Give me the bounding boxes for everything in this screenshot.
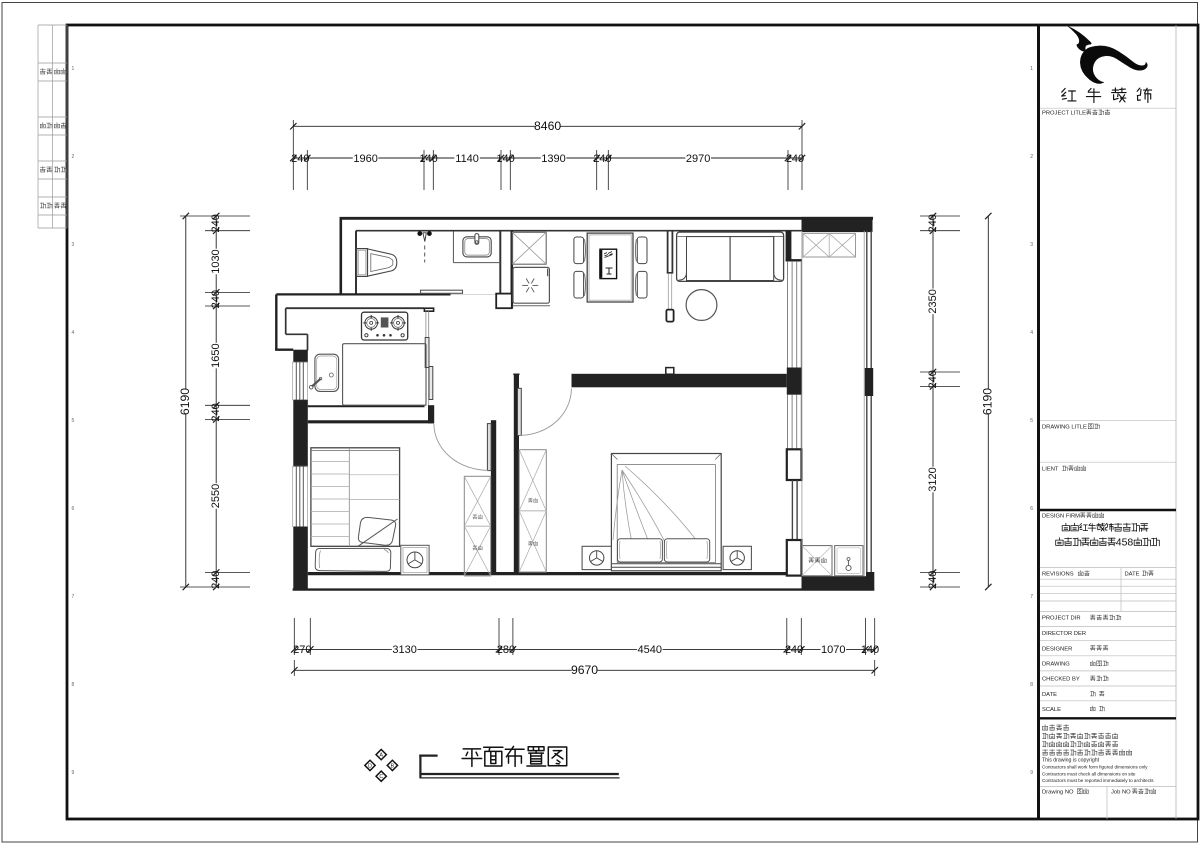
svg-text:7: 7	[72, 594, 75, 600]
svg-text:240: 240	[210, 571, 222, 589]
svg-text:1390: 1390	[541, 153, 565, 165]
svg-text:REVISIONS: REVISIONS	[1042, 572, 1074, 578]
svg-text:5: 5	[1030, 418, 1033, 424]
svg-text:6190: 6190	[178, 388, 192, 415]
svg-text:CHECKED BY: CHECKED BY	[1042, 677, 1080, 683]
svg-text:240: 240	[210, 290, 222, 308]
svg-text:8460: 8460	[534, 119, 561, 133]
svg-text:Contractors must check all dim: Contractors must check all dimensions on…	[1042, 772, 1136, 777]
svg-text:DRAWING LITLE: DRAWING LITLE	[1042, 425, 1087, 431]
svg-text:5: 5	[72, 418, 75, 424]
svg-text:3120: 3120	[927, 467, 939, 491]
svg-text:2: 2	[1030, 154, 1033, 160]
svg-text:4540: 4540	[638, 644, 662, 656]
svg-text:9670: 9670	[571, 663, 598, 677]
svg-text:This drawing is copyright: This drawing is copyright	[1042, 758, 1100, 764]
svg-text:B: B	[391, 763, 395, 769]
svg-text:SCALE: SCALE	[1042, 707, 1061, 713]
svg-text:DESIGN FIRM: DESIGN FIRM	[1042, 514, 1080, 520]
svg-text:8: 8	[72, 682, 75, 688]
svg-text:4: 4	[1030, 330, 1033, 336]
svg-text:240: 240	[927, 214, 939, 232]
svg-text:Job NO: Job NO	[1111, 790, 1131, 796]
svg-text:240: 240	[786, 153, 804, 165]
svg-text:240: 240	[210, 403, 222, 421]
svg-text:9: 9	[1030, 770, 1033, 776]
svg-text:140: 140	[419, 153, 437, 165]
svg-text:6: 6	[1030, 506, 1033, 512]
svg-text:7: 7	[1030, 594, 1033, 600]
svg-text:2: 2	[72, 154, 75, 160]
svg-text:270: 270	[293, 644, 311, 656]
svg-text:DRAWING: DRAWING	[1042, 662, 1070, 668]
svg-text:280: 280	[497, 644, 515, 656]
svg-text:3130: 3130	[392, 644, 416, 656]
svg-text:458: 458	[1116, 536, 1134, 548]
svg-text:140: 140	[861, 644, 879, 656]
svg-text:DIRECTOR DER: DIRECTOR DER	[1042, 631, 1086, 637]
svg-text:4: 4	[72, 330, 75, 336]
svg-text:6: 6	[72, 506, 75, 512]
svg-text:Drawing NO: Drawing NO	[1042, 790, 1074, 796]
svg-text:Contractors shall work form fi: Contractors shall work form figured dime…	[1042, 765, 1148, 770]
svg-text:1140: 1140	[455, 153, 479, 165]
svg-text:6190: 6190	[980, 388, 994, 415]
svg-text:A: A	[379, 753, 383, 759]
svg-text:2350: 2350	[927, 289, 939, 313]
svg-text:DATE: DATE	[1125, 572, 1140, 578]
svg-text:1070: 1070	[821, 644, 845, 656]
svg-text:240: 240	[291, 153, 309, 165]
svg-text:PROJECT DIR: PROJECT DIR	[1042, 616, 1081, 622]
svg-text:9: 9	[72, 770, 75, 776]
svg-text:1650: 1650	[210, 343, 222, 367]
svg-text:240: 240	[593, 153, 611, 165]
svg-text:8: 8	[1030, 682, 1033, 688]
svg-text:240: 240	[927, 370, 939, 388]
svg-text:1030: 1030	[210, 249, 222, 273]
svg-text:D: D	[368, 763, 372, 769]
svg-text:DATE: DATE	[1042, 692, 1057, 698]
svg-text:Contractors must be reported i: Contractors must be reported immediately…	[1042, 778, 1154, 783]
svg-text:2550: 2550	[210, 484, 222, 508]
svg-text:3: 3	[72, 242, 75, 248]
svg-text:2970: 2970	[686, 153, 710, 165]
svg-text:1960: 1960	[353, 153, 377, 165]
svg-text:240: 240	[210, 214, 222, 232]
svg-text:140: 140	[496, 153, 514, 165]
svg-text:1: 1	[72, 66, 75, 72]
svg-text:240: 240	[785, 644, 803, 656]
svg-text:240: 240	[927, 571, 939, 589]
svg-text:DESIGNER: DESIGNER	[1042, 646, 1072, 652]
svg-text:1: 1	[1030, 66, 1033, 72]
svg-text:LIENT: LIENT	[1042, 467, 1059, 473]
svg-text:C: C	[379, 774, 383, 780]
svg-text:3: 3	[1030, 242, 1033, 248]
svg-text:PROJECT LITLE: PROJECT LITLE	[1042, 111, 1086, 117]
